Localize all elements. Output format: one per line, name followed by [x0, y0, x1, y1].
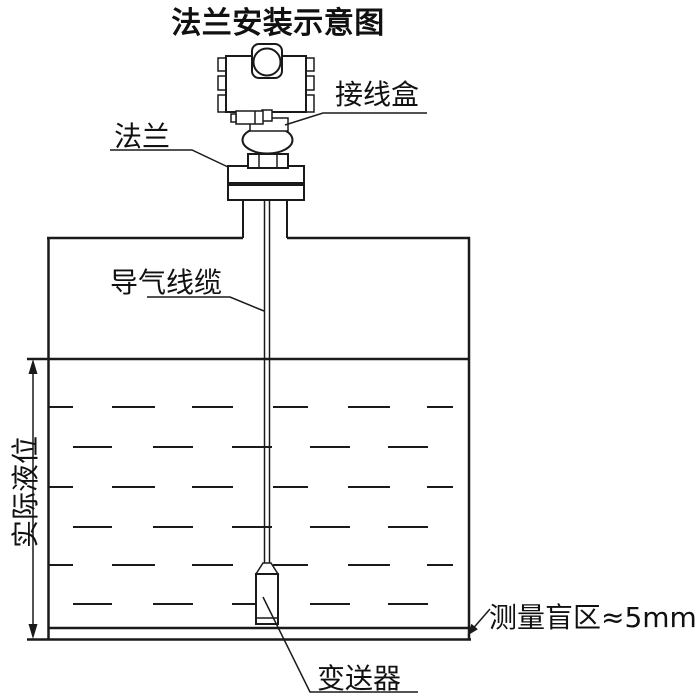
label-actual-level: 实际液位	[9, 436, 42, 548]
hex-nut	[248, 154, 288, 168]
air-cable-lines	[265, 200, 270, 563]
probe-body	[256, 574, 278, 624]
flange-plate-lower	[228, 185, 304, 200]
flange-assembly	[228, 166, 304, 238]
transmitter-probe	[256, 563, 278, 624]
liquid-dashes	[48, 407, 453, 604]
fin-right-2	[306, 76, 314, 90]
arrowhead-down-icon	[29, 624, 38, 639]
tank-outline	[27, 237, 471, 640]
transmitter-head	[218, 44, 314, 168]
fin-left-1	[218, 58, 226, 71]
fin-right-1	[306, 58, 314, 71]
flange-installation-diagram: 法兰安装示意图 接线盒 法兰 导气线缆 实际液位 测量盲区≈5mm 变送器	[0, 0, 700, 700]
leader-junction-box	[285, 113, 427, 125]
label-blind-zone: 测量盲区≈5mm	[489, 601, 697, 634]
label-junction-box: 接线盒	[335, 78, 419, 111]
fin-left-2	[218, 76, 226, 90]
label-transmitter: 变送器	[317, 662, 401, 695]
label-air-cable: 导气线缆	[110, 266, 222, 299]
junction-box-housing	[218, 44, 314, 112]
arrowhead-up-icon	[29, 359, 38, 374]
diagram-canvas: 法兰安装示意图 接线盒 法兰 导气线缆 实际液位 测量盲区≈5mm 变送器	[0, 0, 700, 700]
leader-air-cable	[147, 297, 264, 311]
label-flange: 法兰	[114, 120, 170, 153]
fin-left-3	[218, 95, 226, 112]
fin-right-3	[306, 95, 314, 112]
diagram-title: 法兰安装示意图	[171, 6, 385, 41]
